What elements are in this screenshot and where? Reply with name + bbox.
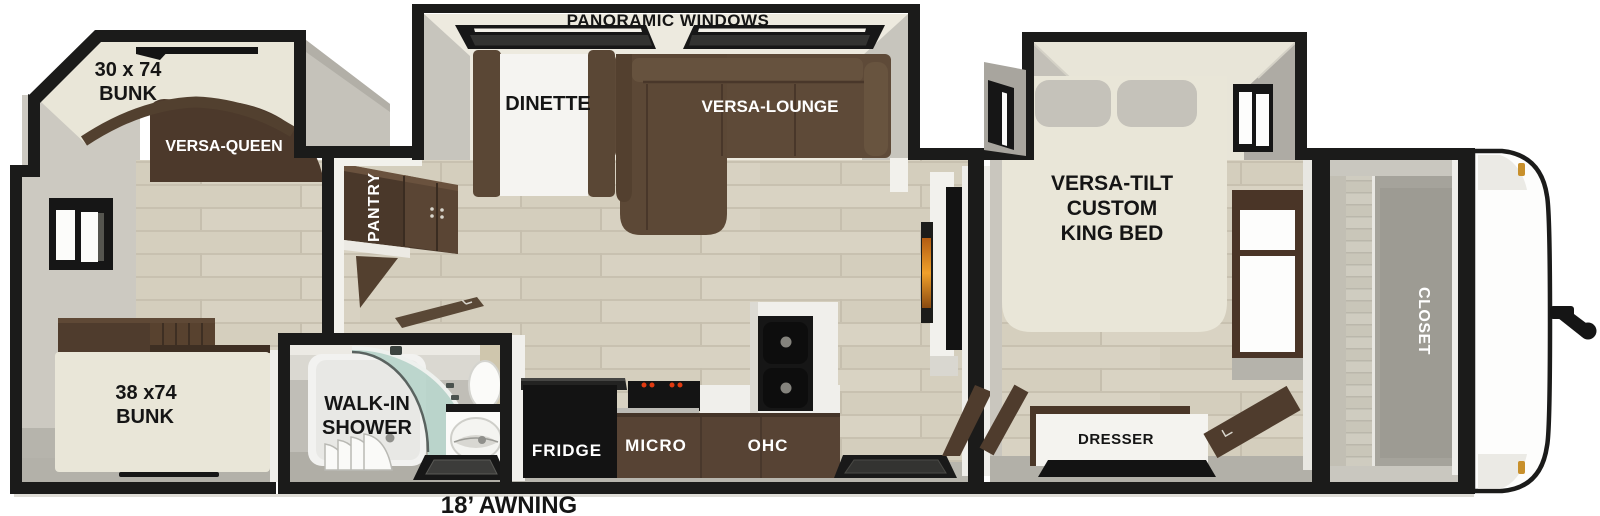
svg-text:18’ AWNING: 18’ AWNING — [441, 492, 577, 516]
svg-text:WALK-IN: WALK-IN — [324, 393, 410, 415]
svg-text:CLOSET: CLOSET — [1415, 287, 1432, 355]
svg-text:VERSA-TILT: VERSA-TILT — [1051, 172, 1173, 195]
svg-text:PANTRY: PANTRY — [366, 172, 383, 242]
svg-text:BUNK: BUNK — [116, 406, 174, 428]
svg-text:OHC: OHC — [748, 436, 789, 455]
svg-text:PANORAMIC WINDOWS: PANORAMIC WINDOWS — [567, 11, 770, 30]
svg-text:BUNK: BUNK — [99, 83, 157, 105]
svg-text:SHOWER: SHOWER — [322, 417, 413, 439]
svg-text:FRIDGE: FRIDGE — [532, 441, 602, 460]
svg-text:30 x 74: 30 x 74 — [95, 59, 163, 81]
svg-text:CUSTOM: CUSTOM — [1067, 197, 1158, 220]
svg-text:DRESSER: DRESSER — [1078, 431, 1154, 448]
svg-text:MICRO: MICRO — [625, 436, 687, 455]
svg-text:VERSA-LOUNGE: VERSA-LOUNGE — [702, 97, 839, 116]
svg-text:KING BED: KING BED — [1061, 222, 1164, 245]
svg-text:VERSA-QUEEN: VERSA-QUEEN — [165, 138, 282, 155]
svg-text:38 x74: 38 x74 — [115, 382, 177, 404]
svg-text:DINETTE: DINETTE — [505, 93, 591, 115]
